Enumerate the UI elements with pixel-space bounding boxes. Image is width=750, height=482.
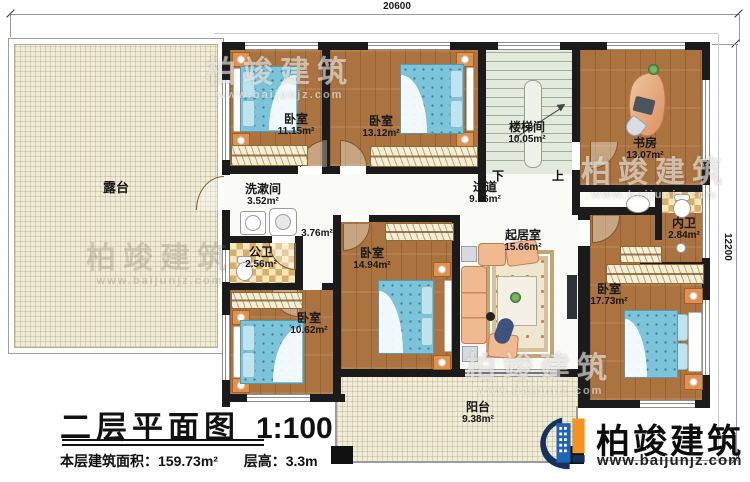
room-label-bedroom-a: 卧室11.15m² — [278, 112, 315, 138]
window — [702, 185, 710, 258]
wall — [333, 215, 341, 402]
pillow — [242, 71, 255, 98]
pillow — [450, 100, 463, 128]
wall — [222, 283, 295, 290]
sink-basin — [245, 215, 261, 231]
sofa — [461, 266, 487, 344]
room-label-bedroom-d: 卧室10.62m² — [290, 311, 327, 337]
room-label-terrace: 露台 — [103, 180, 129, 196]
pillow — [242, 100, 255, 127]
washing-machine-drum — [275, 214, 291, 230]
tv — [567, 275, 577, 319]
floor-height-label: 层高： — [244, 453, 286, 469]
bed-headboard — [466, 67, 474, 131]
wall — [655, 192, 662, 240]
eave-line — [718, 33, 719, 463]
floor-area-value: 159.73m² — [158, 453, 218, 469]
floor-height-value: 3.3m — [286, 453, 318, 469]
room-label-washroom: 洗漱间3.52m² — [245, 182, 281, 208]
title-underline — [62, 439, 264, 441]
room-label-bedroom-b: 卧室13.12m² — [362, 114, 399, 140]
pillow — [421, 286, 433, 315]
sink — [626, 195, 650, 213]
room-label-hallway: 过道9.86m² — [469, 180, 501, 206]
side-table — [462, 346, 478, 362]
wall — [295, 236, 303, 290]
room-label-balcony: 阳台9.38m² — [462, 400, 494, 426]
dimension-line-top — [10, 14, 740, 15]
plant — [510, 292, 521, 303]
bed-headboard — [444, 280, 452, 352]
door-leaf — [325, 140, 326, 166]
wardrobe — [606, 264, 704, 284]
window — [245, 42, 318, 50]
nightstand — [433, 262, 451, 277]
floor-drain — [676, 243, 686, 253]
window — [222, 250, 230, 282]
dimension-line-right — [736, 44, 737, 460]
bed-blanket — [379, 291, 403, 353]
wardrobe — [385, 223, 454, 241]
armchair — [478, 243, 506, 266]
wall — [326, 166, 340, 174]
nightstand — [433, 355, 451, 370]
title-underline — [62, 444, 264, 446]
pillow — [242, 325, 255, 351]
nightstand — [232, 52, 250, 67]
nightstand — [684, 288, 703, 304]
wall — [369, 215, 460, 222]
wall — [322, 283, 333, 290]
door-leaf — [590, 141, 591, 168]
sink — [240, 211, 266, 235]
window — [222, 315, 230, 380]
eave-line — [214, 33, 719, 34]
room-label-living: 起居室15.66m² — [504, 228, 541, 254]
room-label-bedroom-c: 卧室14.94m² — [353, 246, 390, 272]
window — [607, 42, 685, 50]
door-leaf — [340, 140, 341, 166]
decor-ball — [486, 312, 495, 321]
wardrobe — [231, 145, 308, 166]
bed-blanket — [625, 319, 647, 377]
side-table — [461, 246, 477, 262]
door-leaf — [343, 224, 344, 250]
bed-blanket — [401, 75, 427, 133]
hallway-floor — [333, 174, 578, 215]
wardrobe — [231, 292, 303, 309]
terrace-floor — [14, 44, 218, 348]
window — [702, 80, 710, 160]
wall — [578, 185, 710, 192]
dimension-extension — [10, 15, 11, 37]
window — [247, 394, 310, 402]
scale-value: 1:100 — [256, 412, 333, 446]
room-label-corridor-nook: 3.76m² — [301, 228, 333, 240]
floor-info: 本层建筑面积：159.73m² 层高：3.3m — [60, 451, 318, 471]
door-leaf — [592, 215, 593, 243]
pillow — [421, 317, 433, 346]
stair-up-label: 上 — [552, 167, 564, 184]
pillow — [242, 352, 255, 378]
room-label-study: 书房13.07m² — [626, 136, 663, 162]
wall — [478, 42, 486, 202]
window — [702, 300, 710, 375]
wall — [366, 166, 478, 174]
floor-area-label: 本层建筑面积： — [60, 453, 158, 469]
nightstand — [684, 374, 703, 390]
brand-url: www.baijunjz.com — [597, 452, 742, 469]
brand-logo-icon — [534, 410, 594, 472]
wall — [578, 215, 590, 220]
window — [368, 42, 450, 50]
sliding-door — [465, 369, 557, 377]
wall — [572, 42, 580, 142]
dimension-extension — [712, 44, 738, 45]
room-label-inner-bath: 内卫2.84m² — [668, 216, 700, 242]
pillow — [450, 70, 463, 98]
wardrobe — [370, 146, 478, 167]
window — [640, 400, 695, 408]
dimension-top-value: 20600 — [383, 1, 411, 12]
dimension-right-value: 12200 — [722, 233, 733, 261]
wall — [578, 246, 590, 408]
door-leaf — [294, 243, 295, 269]
room-label-stairwell: 楼梯间10.05m² — [508, 120, 545, 146]
wall — [222, 166, 298, 174]
wall — [578, 207, 662, 215]
room-label-public-bath: 公卫2.56m² — [245, 245, 277, 271]
washing-machine — [269, 208, 297, 236]
plant — [648, 64, 659, 75]
window — [498, 42, 560, 50]
floor-plan: 20600 12200 下 上 — [0, 0, 750, 482]
dimension-extension — [739, 15, 740, 42]
balcony-post — [331, 446, 353, 464]
window — [222, 80, 230, 160]
wardrobe — [620, 246, 662, 263]
nightstand — [456, 132, 474, 147]
room-label-bedroom-e: 卧室17.73m² — [590, 282, 627, 308]
bed-headboard — [688, 312, 702, 372]
bed-mattress — [624, 310, 678, 378]
wall — [222, 236, 272, 243]
